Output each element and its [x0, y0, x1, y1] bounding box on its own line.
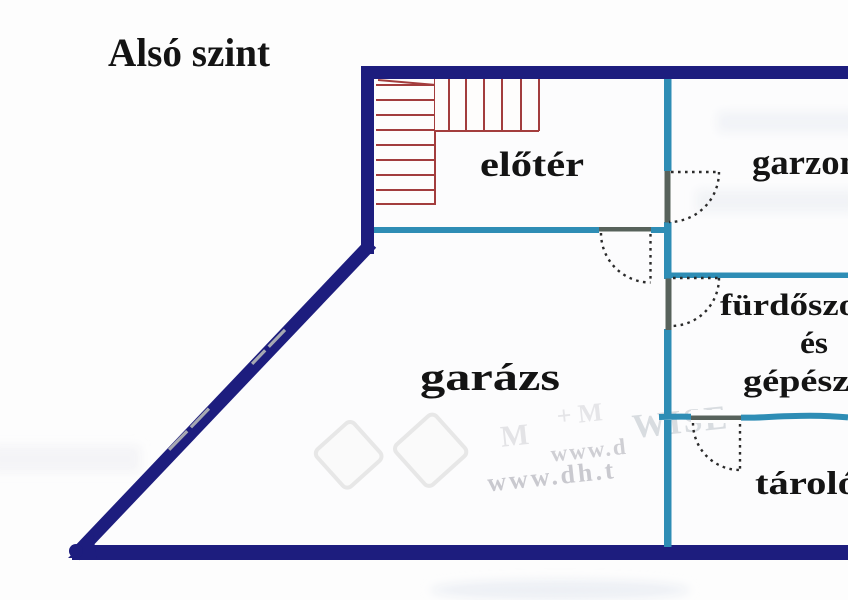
svg-text:M: M	[499, 418, 531, 454]
svg-text:tároló: tároló	[755, 466, 848, 502]
svg-text:Alsó szint: Alsó szint	[108, 30, 271, 75]
svg-text:és: és	[800, 325, 828, 360]
svg-text:garzon: garzon	[752, 143, 848, 182]
svg-text:fürdőszoba: fürdőszoba	[720, 287, 848, 322]
svg-text:+ M: + M	[555, 397, 604, 431]
svg-text:előtér: előtér	[480, 145, 584, 184]
svg-text:garázs: garázs	[420, 356, 560, 399]
svg-text:gépészet: gépészet	[743, 363, 848, 398]
